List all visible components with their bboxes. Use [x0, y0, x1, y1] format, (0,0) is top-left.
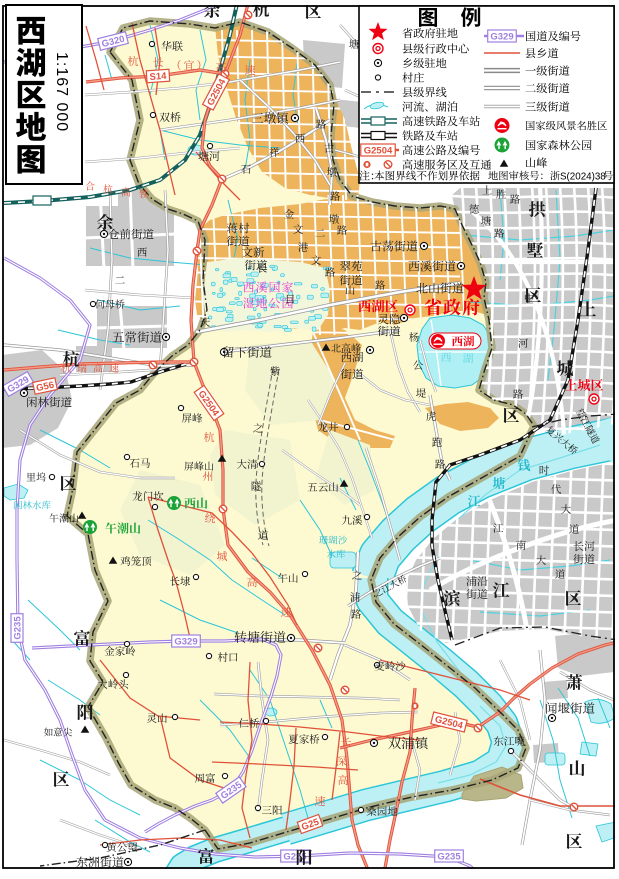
svg-text:G2504: G2504 [364, 145, 393, 156]
svg-text:1:167 000: 1:167 000 [53, 52, 70, 132]
svg-text:G235: G235 [12, 616, 23, 640]
svg-text:G329: G329 [174, 636, 197, 647]
svg-text:S14: S14 [149, 71, 167, 83]
svg-text:S(2024)38: S(2024)38 [560, 171, 606, 182]
svg-text:G329: G329 [490, 31, 513, 42]
svg-text:G235: G235 [437, 851, 461, 862]
